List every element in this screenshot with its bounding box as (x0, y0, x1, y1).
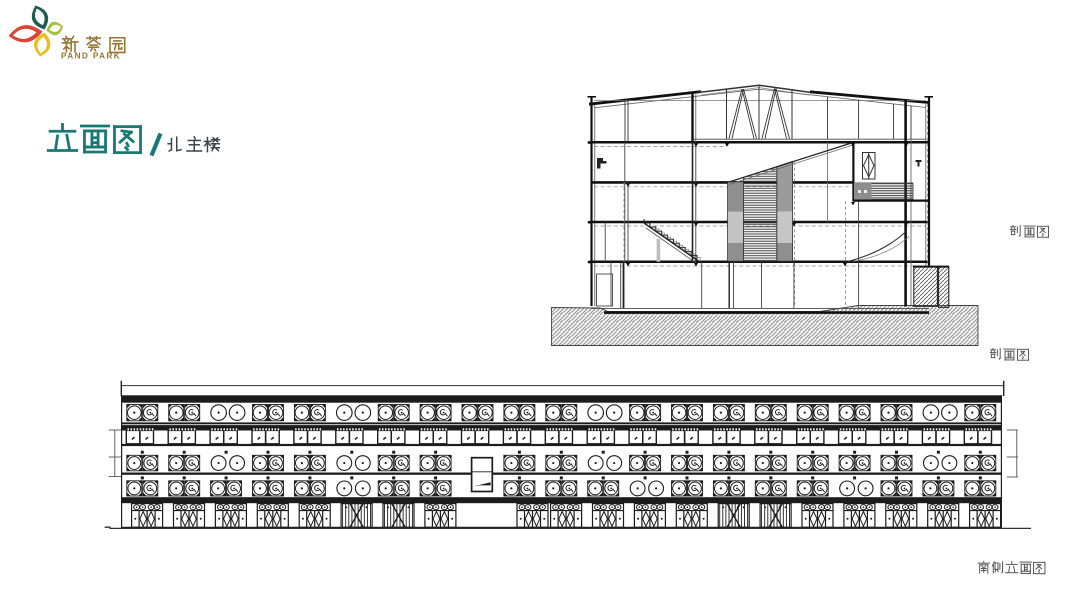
svg-text:PAND PARK: PAND PARK (61, 52, 121, 61)
